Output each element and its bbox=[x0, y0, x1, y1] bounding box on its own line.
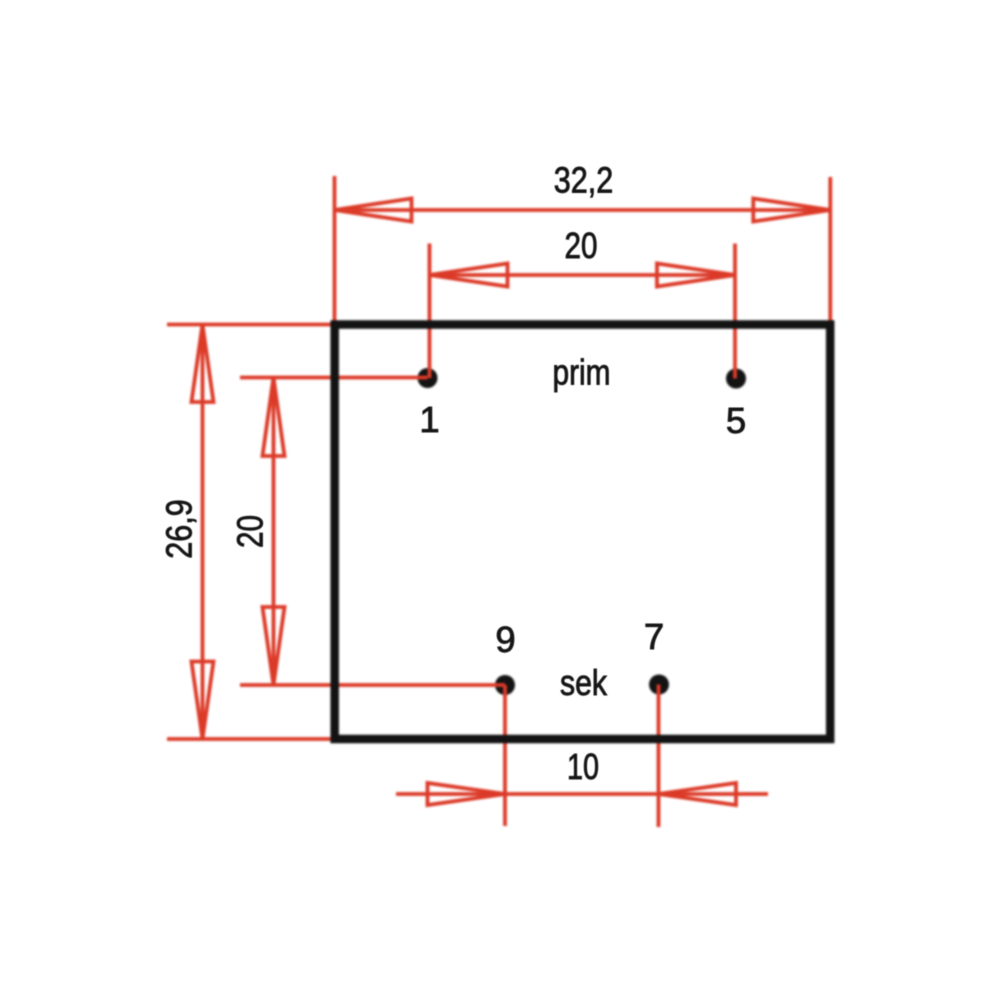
svg-text:20: 20 bbox=[565, 225, 598, 266]
svg-text:prim: prim bbox=[553, 352, 611, 393]
svg-text:sek: sek bbox=[560, 662, 608, 703]
svg-text:1: 1 bbox=[419, 399, 439, 440]
svg-text:9: 9 bbox=[495, 619, 515, 660]
svg-text:7: 7 bbox=[644, 616, 664, 657]
svg-text:26,9: 26,9 bbox=[159, 499, 200, 559]
svg-text:10: 10 bbox=[567, 746, 599, 787]
svg-text:5: 5 bbox=[726, 400, 746, 441]
svg-text:32,2: 32,2 bbox=[554, 160, 614, 201]
svg-text:20: 20 bbox=[230, 515, 271, 548]
